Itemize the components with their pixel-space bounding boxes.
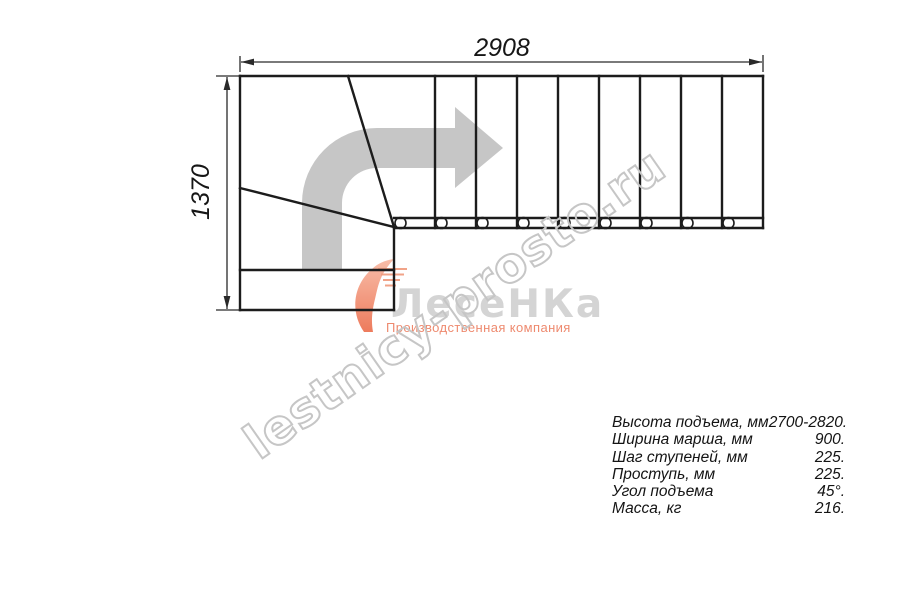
spec-label: Высота подъема, мм xyxy=(612,414,769,431)
spec-row: Ширина марша, мм 900. xyxy=(612,431,845,448)
dimension-width-label: 2908 xyxy=(473,34,530,62)
spec-row: Проступь, мм 225. xyxy=(612,466,845,483)
spec-row: Высота подъема, мм 2700-2820. xyxy=(612,414,845,431)
spec-value: 216. xyxy=(815,500,845,517)
spec-label: Ширина марша, мм xyxy=(612,431,753,448)
stair-plan-page: ЛесеНКа Производственная компания xyxy=(0,0,900,600)
spec-label: Шаг ступеней, мм xyxy=(612,449,748,466)
spec-value: 45°. xyxy=(817,483,845,500)
specs-table: Высота подъема, мм 2700-2820. Ширина мар… xyxy=(612,414,845,518)
spec-label: Угол подъема xyxy=(612,483,713,500)
spec-row: Шаг ступеней, мм 225. xyxy=(612,449,845,466)
spec-value: 900. xyxy=(815,431,845,448)
spec-label: Масса, кг xyxy=(612,500,681,517)
spec-value: 225. xyxy=(815,449,845,466)
dimension-height-label: 1370 xyxy=(187,164,215,220)
direction-arrow-icon xyxy=(302,107,503,270)
spec-row: Угол подъема 45°. xyxy=(612,483,845,500)
spec-row: Масса, кг 216. xyxy=(612,500,845,517)
spec-label: Проступь, мм xyxy=(612,466,715,483)
spec-value: 225. xyxy=(815,466,845,483)
spec-value: 2700-2820. xyxy=(769,414,847,431)
